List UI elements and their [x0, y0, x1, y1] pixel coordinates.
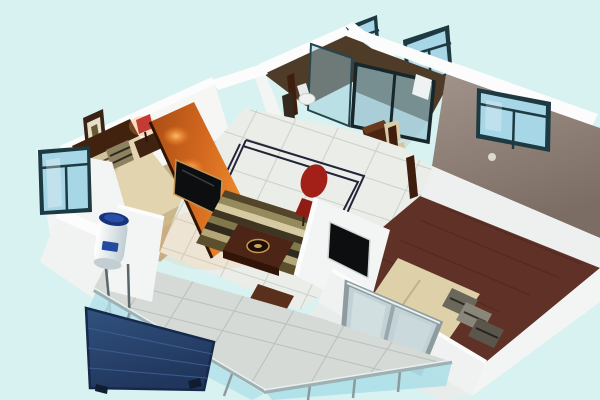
bedroom1-window-icon: [38, 146, 92, 215]
wall-clock-icon: [488, 153, 497, 162]
floor-plan-svg: [0, 0, 600, 400]
floor-plan-render: [0, 0, 600, 400]
